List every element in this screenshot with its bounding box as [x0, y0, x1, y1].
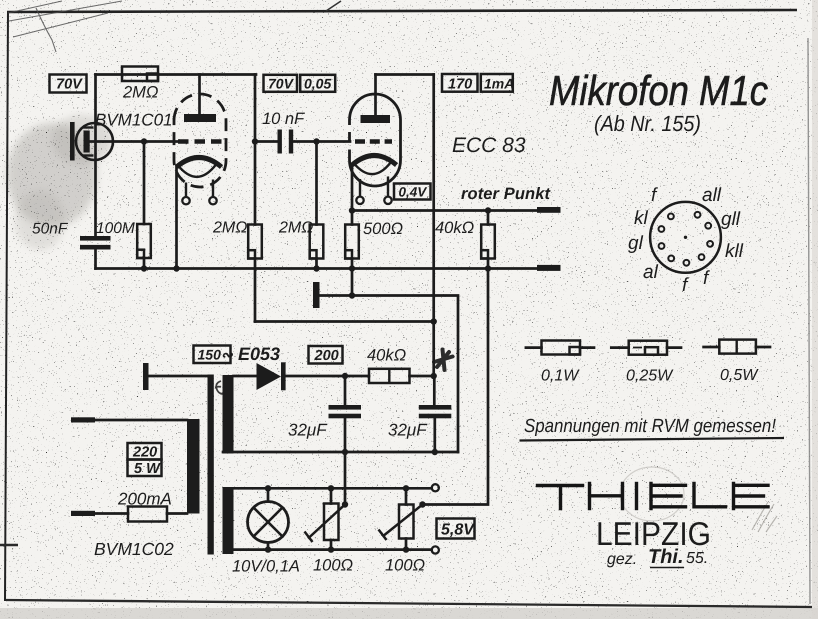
- svg-text:kl: kl: [634, 208, 649, 229]
- svg-text:Mikrofon M1c: Mikrofon M1c: [549, 67, 768, 114]
- svg-text:gll: gll: [721, 209, 741, 230]
- svg-text:100Ω: 100Ω: [313, 557, 353, 575]
- svg-text:5,8V: 5,8V: [441, 522, 475, 539]
- svg-text:0,05: 0,05: [304, 76, 331, 92]
- svg-text:ECC 83: ECC 83: [452, 134, 526, 157]
- svg-text:10V/0,1A: 10V/0,1A: [232, 558, 300, 576]
- svg-text:Spannungen mit RVM gemessen!: Spannungen mit RVM gemessen!: [524, 416, 777, 437]
- svg-text:70V: 70V: [268, 76, 295, 92]
- svg-text:2MΩ: 2MΩ: [122, 84, 158, 102]
- svg-text:0,5W: 0,5W: [720, 367, 759, 384]
- svg-text:(Ab Nr. 155): (Ab Nr. 155): [594, 111, 701, 136]
- svg-text:32μF: 32μF: [288, 421, 328, 440]
- svg-text:Thi.: Thi.: [648, 546, 684, 568]
- svg-text:100M: 100M: [96, 220, 135, 237]
- svg-text:all: all: [702, 185, 722, 206]
- svg-text:500Ω: 500Ω: [363, 220, 403, 238]
- svg-text:220: 220: [132, 445, 157, 461]
- svg-text:5 W: 5 W: [134, 461, 161, 477]
- svg-text:kll: kll: [725, 241, 744, 262]
- svg-text:10 nF: 10 nF: [262, 110, 305, 128]
- svg-text:gl: gl: [628, 233, 644, 254]
- svg-text:E053: E053: [238, 344, 280, 364]
- svg-text:2MΩ: 2MΩ: [278, 220, 313, 237]
- svg-text:0,1W: 0,1W: [541, 368, 580, 385]
- svg-text:gez.: gez.: [607, 551, 637, 568]
- svg-text:55.: 55.: [686, 550, 708, 567]
- svg-text:BVM1C02: BVM1C02: [94, 539, 174, 559]
- svg-text:40kΩ: 40kΩ: [435, 219, 474, 237]
- svg-text:150∾: 150∾: [198, 347, 234, 363]
- svg-text:170: 170: [448, 77, 472, 93]
- svg-text:1mA: 1mA: [484, 76, 514, 92]
- svg-text:0,4V: 0,4V: [399, 185, 428, 200]
- svg-text:2MΩ: 2MΩ: [212, 220, 247, 237]
- svg-text:roter Punkt: roter Punkt: [461, 185, 552, 203]
- svg-text:0,25W: 0,25W: [626, 368, 674, 385]
- svg-text:200: 200: [314, 348, 339, 364]
- svg-text:al: al: [643, 262, 659, 283]
- svg-text:40kΩ: 40kΩ: [367, 347, 406, 365]
- svg-text:32μF: 32μF: [388, 421, 428, 440]
- svg-text:70V: 70V: [56, 77, 83, 93]
- svg-text:100Ω: 100Ω: [385, 557, 425, 575]
- svg-text:50nF: 50nF: [32, 221, 69, 238]
